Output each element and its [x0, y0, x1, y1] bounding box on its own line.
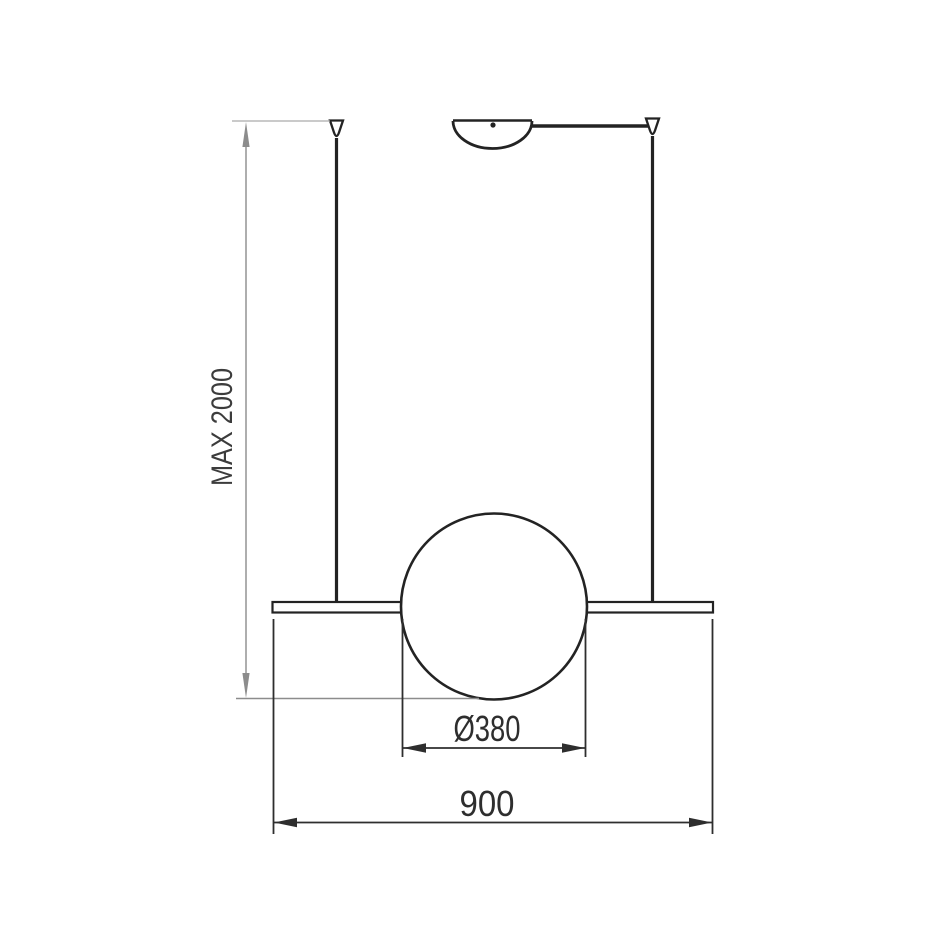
- bar-length-arrow-left: [274, 818, 297, 828]
- max-drop-arrow-down: [242, 673, 249, 698]
- max-drop-label: MAX 2000: [206, 368, 239, 486]
- pendant-lamp-drawing: MAX 2000 Ø380 900: [0, 0, 950, 950]
- lamp-fixture: [273, 119, 714, 700]
- bar-length-label: 900: [460, 783, 515, 824]
- max-drop-arrow-up: [242, 122, 249, 147]
- bar-length-arrow-right: [689, 818, 712, 828]
- left-ceiling-mount: [330, 121, 343, 137]
- technical-drawing-canvas: MAX 2000 Ø380 900: [0, 0, 950, 950]
- diameter-label: Ø380: [454, 708, 521, 749]
- diameter-arrow-right: [562, 743, 585, 753]
- ceiling-canopy: [453, 121, 532, 149]
- diameter-arrow-left: [403, 743, 426, 753]
- sphere-diffuser: [401, 514, 587, 700]
- canopy-center-detail: [490, 122, 495, 127]
- right-ceiling-mount: [646, 119, 659, 135]
- bar-right-segment: [586, 602, 714, 613]
- bar-left-segment: [273, 602, 404, 613]
